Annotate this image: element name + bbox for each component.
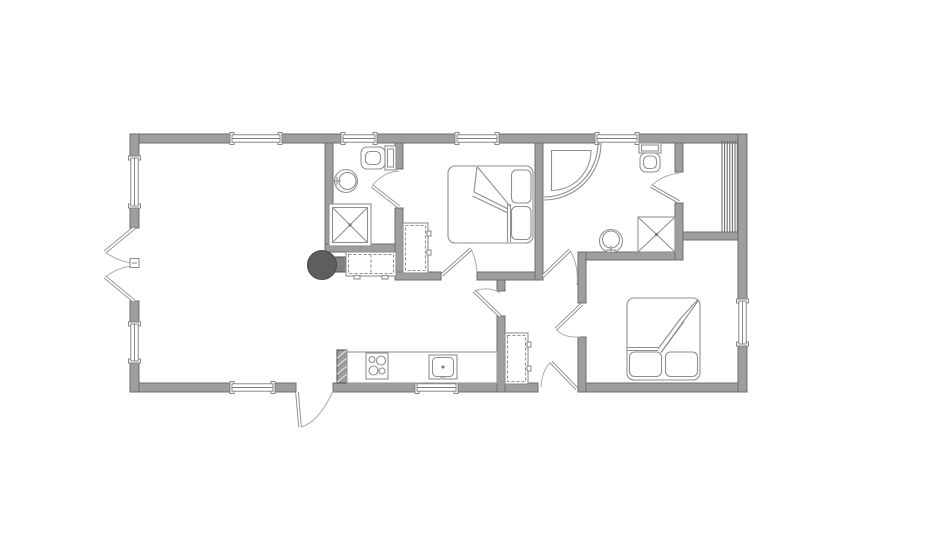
window-bottom-1 <box>230 382 275 394</box>
toilet-1 <box>361 146 396 170</box>
bed-bedroom2-part <box>630 352 662 377</box>
window-left-2 <box>129 322 141 363</box>
toilet-2 <box>639 143 661 172</box>
hall-west-wall-post <box>497 280 505 291</box>
door-swing-arc <box>570 250 577 285</box>
fixtures-layer <box>130 141 737 384</box>
bed-bedroom1 <box>448 166 533 243</box>
kitchen-sink <box>429 355 457 379</box>
top-wall-seg-1 <box>131 134 232 143</box>
bathroom1-door <box>372 171 399 207</box>
patio-door-top-leaf <box>105 228 134 263</box>
patio-door-center-post <box>130 259 139 268</box>
floor-plan-canvas <box>0 0 950 544</box>
bottom-wall-seg-3 <box>333 383 417 392</box>
patio-door-bottom-leaf <box>105 266 134 301</box>
door-swing-arc <box>372 171 399 186</box>
corner-shower-part <box>544 143 598 197</box>
bathroom2-south-wall <box>578 252 683 260</box>
shower-1 <box>329 204 371 246</box>
toilet-2-part <box>642 145 659 151</box>
door-leaf-core <box>474 291 500 316</box>
shower-2 <box>638 217 675 252</box>
cooktop-part <box>379 368 385 374</box>
bedroom1-door <box>442 249 477 275</box>
door-swing-arc <box>105 252 133 263</box>
bedroom1-east-wall <box>535 143 543 280</box>
door-leaf-core <box>651 186 679 202</box>
top-wall-seg-2 <box>280 134 343 143</box>
cooktop-part <box>369 366 378 375</box>
bedroom1-south-wall-east <box>477 272 543 280</box>
wood-stove-part <box>308 251 337 280</box>
washbasin-1-part <box>339 173 356 190</box>
wardrobe-bedroom1 <box>403 223 431 273</box>
door-leaf-core <box>372 186 399 207</box>
utility-closet-hatch-part <box>722 141 737 232</box>
cooktop-part <box>377 356 386 365</box>
utility-closet-hatch <box>722 141 737 232</box>
wardrobe-bedroom1-part <box>427 250 431 255</box>
window-right-1 <box>737 299 749 346</box>
washbasin-1 <box>333 170 358 193</box>
bedroom2-door <box>556 304 582 337</box>
left-wall-seg-1 <box>130 134 139 158</box>
window-top-1 <box>230 133 282 145</box>
right-wall-seg-2 <box>738 344 747 392</box>
cooktop-part <box>369 357 375 363</box>
window-top-2 <box>341 133 377 145</box>
window-top-3 <box>455 133 499 145</box>
bottom-wall-seg-1 <box>131 383 232 392</box>
bed-bedroom2-part <box>666 352 698 377</box>
bottom-wall-seg-2 <box>273 383 296 392</box>
hall-cabinet-part <box>508 336 526 382</box>
door-leaf-core <box>105 277 134 301</box>
door-swing-arc <box>556 329 580 337</box>
top-wall-seg-3 <box>375 134 457 143</box>
toilet-1-part <box>388 149 394 167</box>
bedroom2-west-wall-upper <box>578 252 586 303</box>
washbasin-2-part <box>603 231 620 248</box>
window-left-1 <box>129 156 141 208</box>
utility-door <box>651 173 679 202</box>
bed-bedroom2 <box>627 298 700 380</box>
hall-living-door <box>474 289 500 316</box>
wood-stove <box>308 251 348 280</box>
kitchen-sink-part <box>442 366 445 369</box>
wardrobe-bedroom1-part <box>427 231 431 236</box>
floor-plan-svg <box>0 0 950 544</box>
utility-west-wall-upper <box>675 143 683 172</box>
corner-shower-part <box>552 151 592 191</box>
door-leaf-core <box>551 362 577 389</box>
left-wall-seg-2 <box>130 206 139 228</box>
cooktop <box>366 353 388 379</box>
cooktop-part <box>366 353 388 379</box>
door-leaf-core <box>105 228 134 252</box>
hall-cabinet <box>505 333 531 384</box>
sideboard-cabinet <box>346 252 396 279</box>
shower-2-part <box>655 233 658 236</box>
hall-cabinet-part <box>527 342 531 347</box>
door-swing-arc <box>105 266 133 277</box>
window-top-4 <box>595 133 639 145</box>
kitchen-end-panel <box>337 350 347 383</box>
bed-bedroom1-part <box>512 170 532 203</box>
toilet-1-part <box>366 152 381 165</box>
corner-shower <box>544 143 601 200</box>
door-swing-arc <box>651 173 679 186</box>
hall-cabinet-part <box>527 366 531 371</box>
bottom-wall-seg-5 <box>578 383 747 392</box>
top-wall-seg-4 <box>497 134 597 143</box>
sideboard-cabinet-part <box>354 276 360 280</box>
corner-shower-part <box>544 143 601 200</box>
door-leaf-core <box>543 250 570 276</box>
left-wall-seg-4 <box>130 361 139 392</box>
washbasin-2 <box>600 230 623 255</box>
left-wall-seg-3 <box>130 301 139 324</box>
utility-west-wall-lower <box>675 203 683 260</box>
door-swing-arc <box>471 249 477 272</box>
shower-1-part <box>348 223 351 226</box>
wardrobe-bedroom1-part <box>406 226 426 271</box>
top-wall-seg-5 <box>637 134 747 143</box>
right-wall-seg-1 <box>738 134 747 301</box>
back-door <box>541 362 577 389</box>
sideboard-cabinet-part <box>382 276 388 280</box>
door-swing-arc <box>301 391 333 427</box>
door-leaf-core <box>442 249 471 275</box>
toilet-2-part <box>644 156 657 169</box>
bathroom2-door <box>543 250 577 285</box>
bedroom2-west-wall-lower <box>578 337 586 392</box>
front-door <box>297 391 333 427</box>
door-swing-arc <box>541 362 551 387</box>
hall-west-wall-lower <box>497 316 505 392</box>
utility-south-wall <box>683 232 738 240</box>
bed-bedroom1-part <box>512 207 532 240</box>
door-leaf-core <box>556 304 582 329</box>
